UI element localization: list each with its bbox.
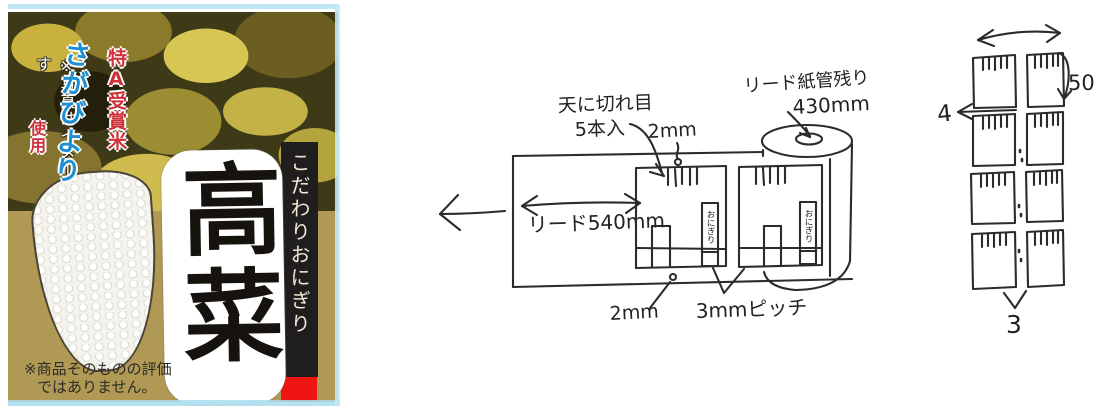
cut-sheet-sketch: 50 4 3 bbox=[930, 10, 1098, 355]
scan-edge-right bbox=[335, 6, 340, 406]
disclaimer-line2: ではありません。 bbox=[24, 378, 172, 396]
core-note-line2: 430mm bbox=[792, 91, 870, 119]
dim-2mm-bottom-leader bbox=[650, 274, 676, 308]
package-1-text: おにぎり bbox=[705, 210, 715, 244]
disclaimer-line1: ※商品そのものの評価 bbox=[24, 360, 172, 378]
scan-edge-bottom bbox=[8, 400, 339, 406]
height-dimension-label: 50 bbox=[1068, 71, 1095, 95]
width-dimension-arrow bbox=[978, 25, 1060, 46]
pitch-pointer bbox=[713, 268, 744, 293]
pitch-number-label: 3 bbox=[1006, 310, 1022, 339]
product-label: ※写真はイメージです こだわりおにぎり 高菜 特A受賞米 さがびより 使用 ※商… bbox=[8, 4, 339, 408]
ribbon-kodawari-onigiri: こだわりおにぎり bbox=[281, 142, 318, 377]
cut-note-line1: 天に切れ目 bbox=[557, 92, 653, 117]
pitch-label: 3mmピッチ bbox=[695, 295, 807, 323]
usage-text: 使用 bbox=[24, 120, 48, 154]
product-name-plate: 高菜 bbox=[161, 149, 286, 405]
pitch-chevron bbox=[1004, 291, 1026, 308]
cut-note-line2: 5本入 bbox=[574, 117, 625, 141]
product-name: 高菜 bbox=[171, 149, 275, 405]
gap-dimension-label: 4 bbox=[936, 101, 953, 128]
package-2-text: おにぎり bbox=[803, 209, 813, 243]
perforation-dots bbox=[1019, 150, 1022, 261]
feed-direction-arrow bbox=[440, 195, 505, 230]
disclaimer: ※商品そのものの評価 ではありません。 bbox=[24, 360, 172, 397]
sheet-cells-column1 bbox=[971, 55, 1016, 289]
roll-web-sketch: リード540mm おにぎり おにぎり 天に切れ目 5本入 bbox=[400, 50, 900, 345]
lead-dimension-label: リード540mm bbox=[527, 208, 665, 237]
ribbon-text: こだわりおにぎり bbox=[285, 142, 314, 377]
award-text: 特A受賞米 bbox=[103, 48, 130, 151]
red-accent-square bbox=[281, 377, 317, 401]
dim-2mm-top: 2mm bbox=[647, 118, 697, 143]
scanned-sheet: { "product_label": { "photo_note": "※写真は… bbox=[0, 0, 1098, 418]
scan-edge-top bbox=[8, 4, 339, 9]
